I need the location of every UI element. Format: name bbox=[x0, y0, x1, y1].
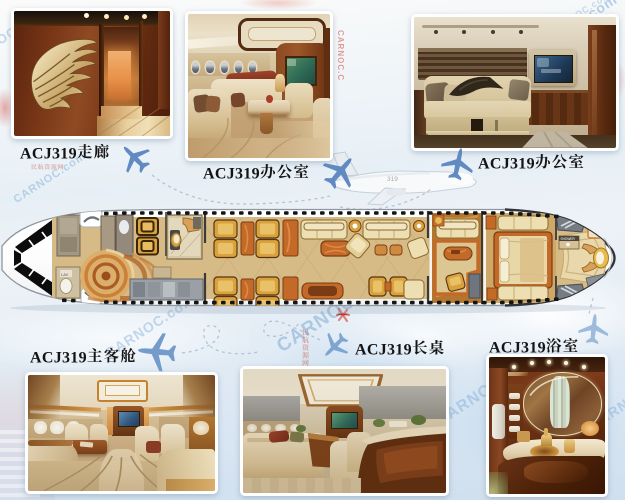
svg-text:ACJ319: ACJ319 bbox=[478, 155, 535, 172]
svg-text:ACJ319: ACJ319 bbox=[355, 341, 412, 358]
svg-text:ACJ319: ACJ319 bbox=[20, 145, 77, 162]
svg-text:SHOWER: SHOWER bbox=[561, 237, 576, 241]
svg-text:LAV: LAV bbox=[61, 272, 69, 277]
svg-text:ACJ319: ACJ319 bbox=[30, 349, 87, 366]
svg-text:ACJ319: ACJ319 bbox=[489, 339, 546, 356]
svg-text:ACJ319: ACJ319 bbox=[203, 165, 260, 182]
